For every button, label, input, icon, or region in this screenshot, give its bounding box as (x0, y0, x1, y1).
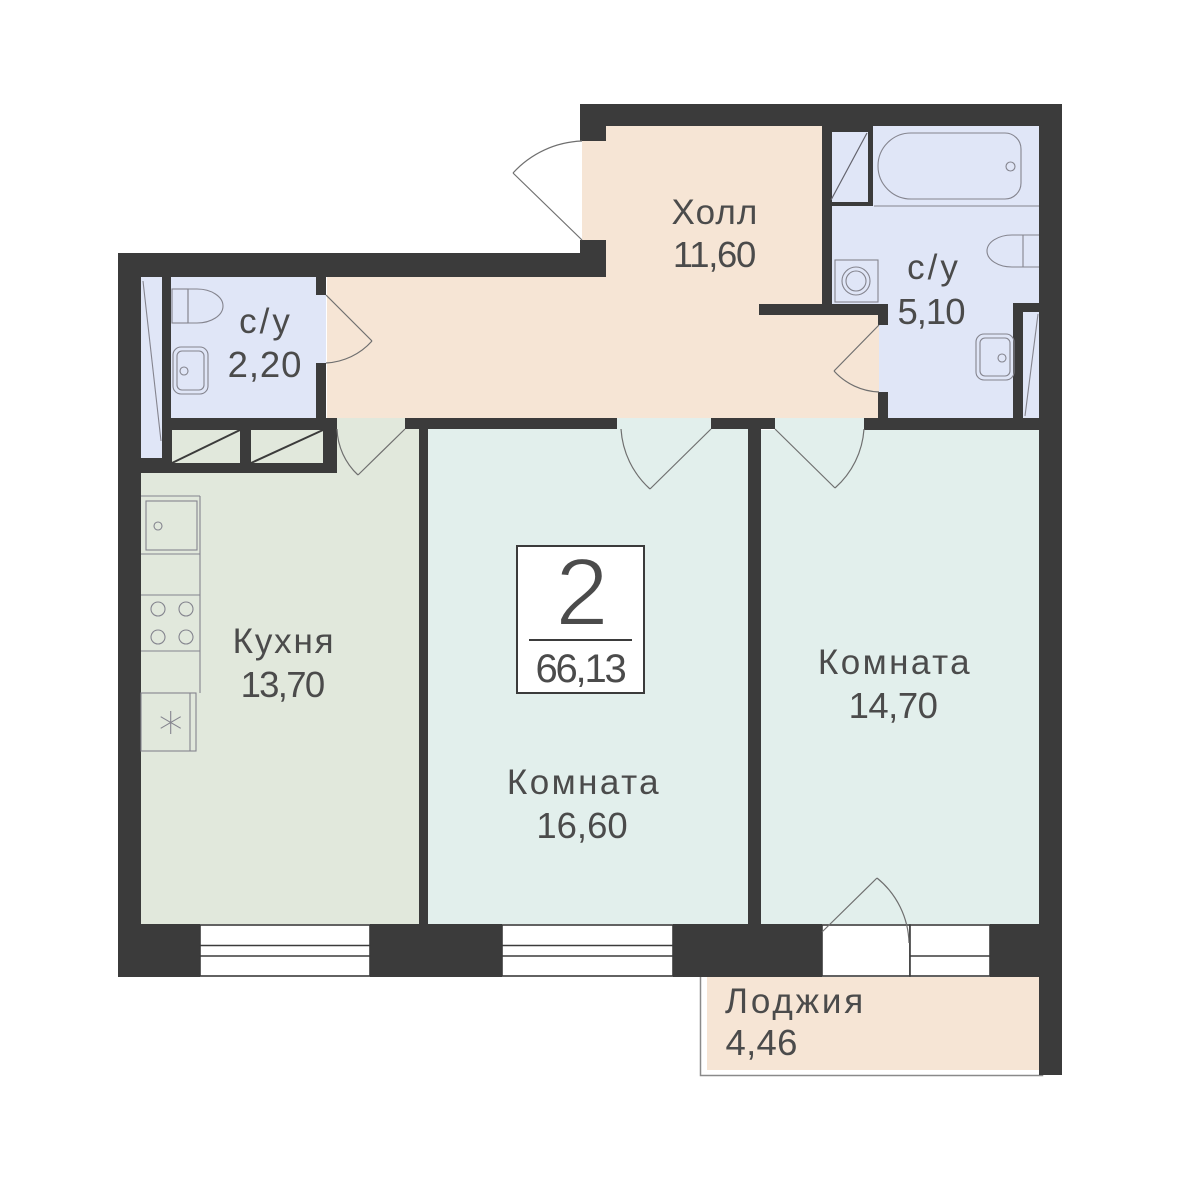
svg-text:Комната: Комната (818, 643, 972, 682)
svg-text:Холл: Холл (672, 193, 759, 232)
svg-text:5,10: 5,10 (897, 291, 964, 332)
svg-text:2,20: 2,20 (228, 344, 303, 385)
svg-text:13,70: 13,70 (241, 664, 324, 705)
svg-text:с/у: с/у (239, 302, 293, 341)
svg-text:11,60: 11,60 (673, 234, 755, 275)
svg-text:14,70: 14,70 (849, 685, 938, 726)
svg-text:2: 2 (555, 539, 608, 646)
svg-text:16,60: 16,60 (536, 805, 627, 846)
svg-text:Лоджия: Лоджия (725, 982, 866, 1021)
svg-text:4,46: 4,46 (726, 1022, 798, 1063)
svg-text:Комната: Комната (507, 763, 661, 802)
svg-text:66,13: 66,13 (535, 647, 625, 691)
svg-text:Кухня: Кухня (233, 622, 336, 661)
svg-text:с/у: с/у (907, 248, 961, 287)
